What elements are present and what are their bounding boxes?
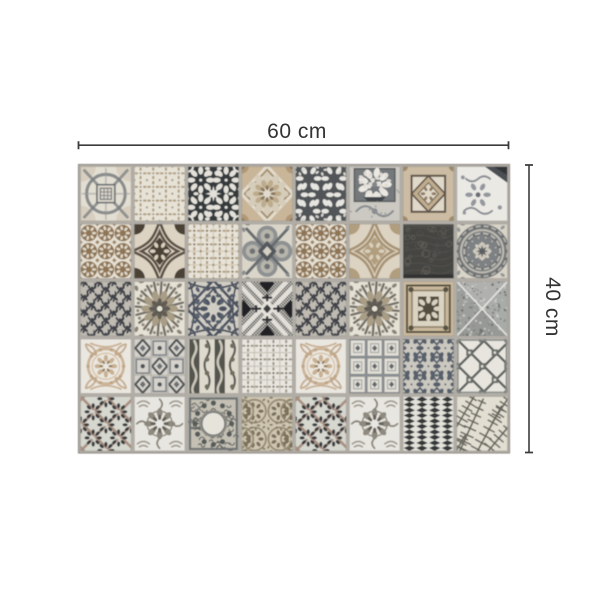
svg-text:60 cm: 60 cm (267, 120, 327, 143)
svg-text:40 cm: 40 cm (541, 277, 564, 337)
